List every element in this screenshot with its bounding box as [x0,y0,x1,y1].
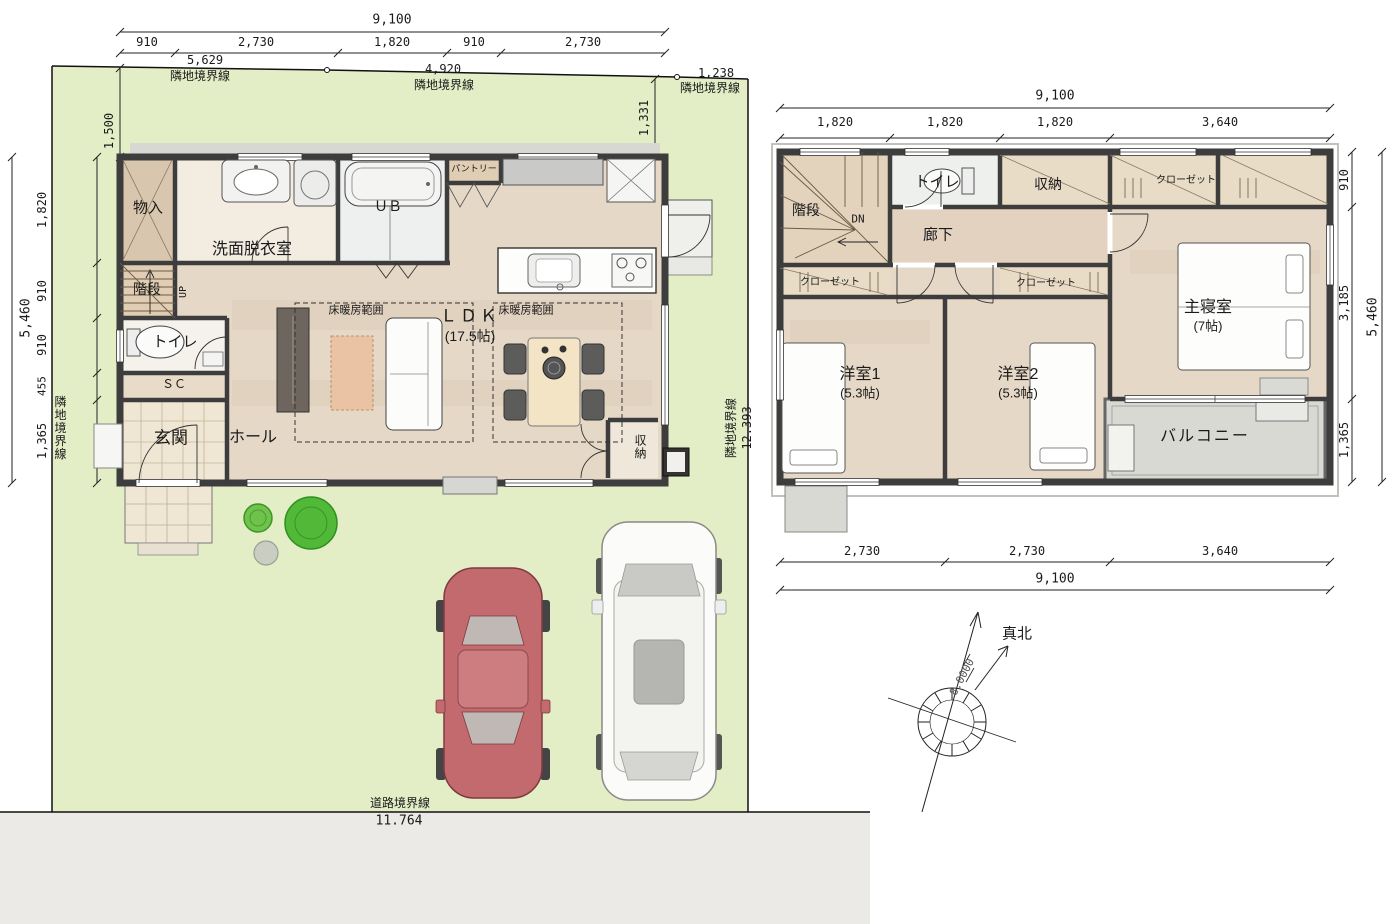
boundary-top1-label: 隣地境界線 [170,70,230,82]
boundary-right-label: 隣地境界線 [725,398,737,458]
tv-board [277,308,309,412]
dim-2f-bot-total: 9,100 [1035,573,1074,586]
room-sc: ＳＣ [162,378,186,390]
true-north-label: 真北 [1002,627,1032,642]
road [0,812,870,924]
dim-1f-top-seg2: 1,820 [374,36,410,48]
road-boundary-value: 11.764 [376,815,423,828]
room-yoshitsu1: 洋室1 [840,367,881,383]
room-closet-1: クローゼット [800,278,860,288]
room-kaidan-2f: 階段 [792,203,820,217]
dim-2f-bot-seg2: 3,640 [1202,545,1238,557]
dim-1f-top-seg3: 910 [463,36,485,48]
dim-1f-top-total: 9,100 [372,14,411,27]
vanity-sink [222,160,290,202]
dim-2f-top-total: 9,100 [1035,90,1074,103]
room-balcony: バルコニー [1160,429,1250,445]
dim-1f-left-seg3: 455 [37,376,48,396]
dim-2f-top-seg0: 1,820 [817,116,853,128]
dim-1f-left-seg2: 910 [36,334,48,356]
dim-1f-left-seg4: 1,365 [36,423,48,459]
dim-2f-bot-seg1: 2,730 [1009,545,1045,557]
floorplan-screenshot: 5,629 隣地境界線 4,920 隣地境界線 1,238 隣地境界線 隣地境界… [0,0,1395,924]
room-pantry: パントリー [451,165,496,174]
room-rouka: 廊下 [923,228,953,243]
dim-1f-left-total: 5,460 [20,298,33,337]
sofa [386,318,442,430]
room-kaidan-1f: 階段 [133,282,161,296]
room-yoshitsu1-size: (5.3帖) [840,387,880,400]
dim-2f-top-seg2: 1,820 [1037,116,1073,128]
car-white [592,522,726,800]
room-shinshitsu: 主寝室 [1184,300,1232,316]
floor-heating-label-1: 床暖房範囲 [329,306,384,317]
boundary-top1-value: 5,629 [187,54,223,66]
floorplan-drawing [0,0,1395,924]
boundary-top2-label: 隣地境界線 [414,79,474,91]
lower-roof [785,486,847,532]
back-door-landing [665,200,712,275]
room-toilet-1f: トイレ [152,335,197,350]
dim-offset-left: 1,500 [103,113,115,149]
dim-1f-top-seg0: 910 [136,36,158,48]
dim-1f-left-seg1: 910 [36,280,48,302]
room-ub: ＵＢ [374,200,402,214]
room-closet-master: クローゼット [1156,176,1216,186]
dim-1f-top-seg4: 2,730 [565,36,601,48]
bed-yoshitsu1 [782,343,845,473]
room-senmen: 洗面脱衣室 [212,242,292,258]
dim-2f-right-seg2: 1,365 [1338,422,1350,458]
dim-2f-right-seg1: 3,185 [1338,285,1350,321]
washing-machine [294,160,336,206]
dim-1f-left-seg0: 1,820 [36,192,48,228]
room-yoshitsu2-size: (5.3帖) [998,387,1038,400]
ac-unit-west [94,424,122,468]
room-hall: ホール [229,430,277,446]
room-shuunou-2f: 収納 [1034,177,1062,191]
dim-2f-top-seg3: 3,640 [1202,116,1238,128]
rug [331,336,373,410]
floor-heating-label-2: 床暖房範囲 [499,306,554,317]
stove [612,254,652,287]
boundary-right-value: 12.393 [741,406,753,449]
dim-2f-bot-seg0: 2,730 [844,545,880,557]
north-compass [888,612,1016,812]
room-closet-2: クローゼット [1016,279,1076,289]
room-yoshitsu2: 洋室2 [998,367,1039,383]
room-shinshitsu-size: (7帖) [1194,320,1223,333]
room-ldk-size: (17.5帖) [445,329,496,343]
shutter-box [443,477,497,494]
boundary-top2-value: 4,920 [425,63,461,75]
room-ldk: ＬＤＫ [440,309,500,326]
room-genkan: 玄関 [154,430,188,447]
road-boundary-label: 道路境界線 [370,797,430,809]
stairs-dn-label: DN [851,214,864,225]
dim-2f-right-total: 5,460 [1367,297,1380,336]
ac-unit-east [663,448,689,476]
car-red [436,568,550,798]
dim-2f-right-seg0: 910 [1338,169,1350,191]
dim-2f-top-seg1: 1,820 [927,116,963,128]
boundary-left-label: 隣地境界線 [54,396,66,461]
boundary-top3-label: 隣地境界線 [680,82,740,94]
room-toilet-2f: トイレ [914,175,959,190]
dim-1f-top-seg1: 2,730 [238,36,274,48]
room-monoire: 物入 [133,201,163,216]
dim-offset-right: 1,331 [638,100,650,136]
house-2f [772,144,1338,532]
boundary-top3-value: 1,238 [698,67,734,79]
stairs-up-label: UP [179,286,189,298]
bed-yoshitsu2 [1030,343,1095,470]
room-shuunou-1f: 収納 [634,434,646,460]
